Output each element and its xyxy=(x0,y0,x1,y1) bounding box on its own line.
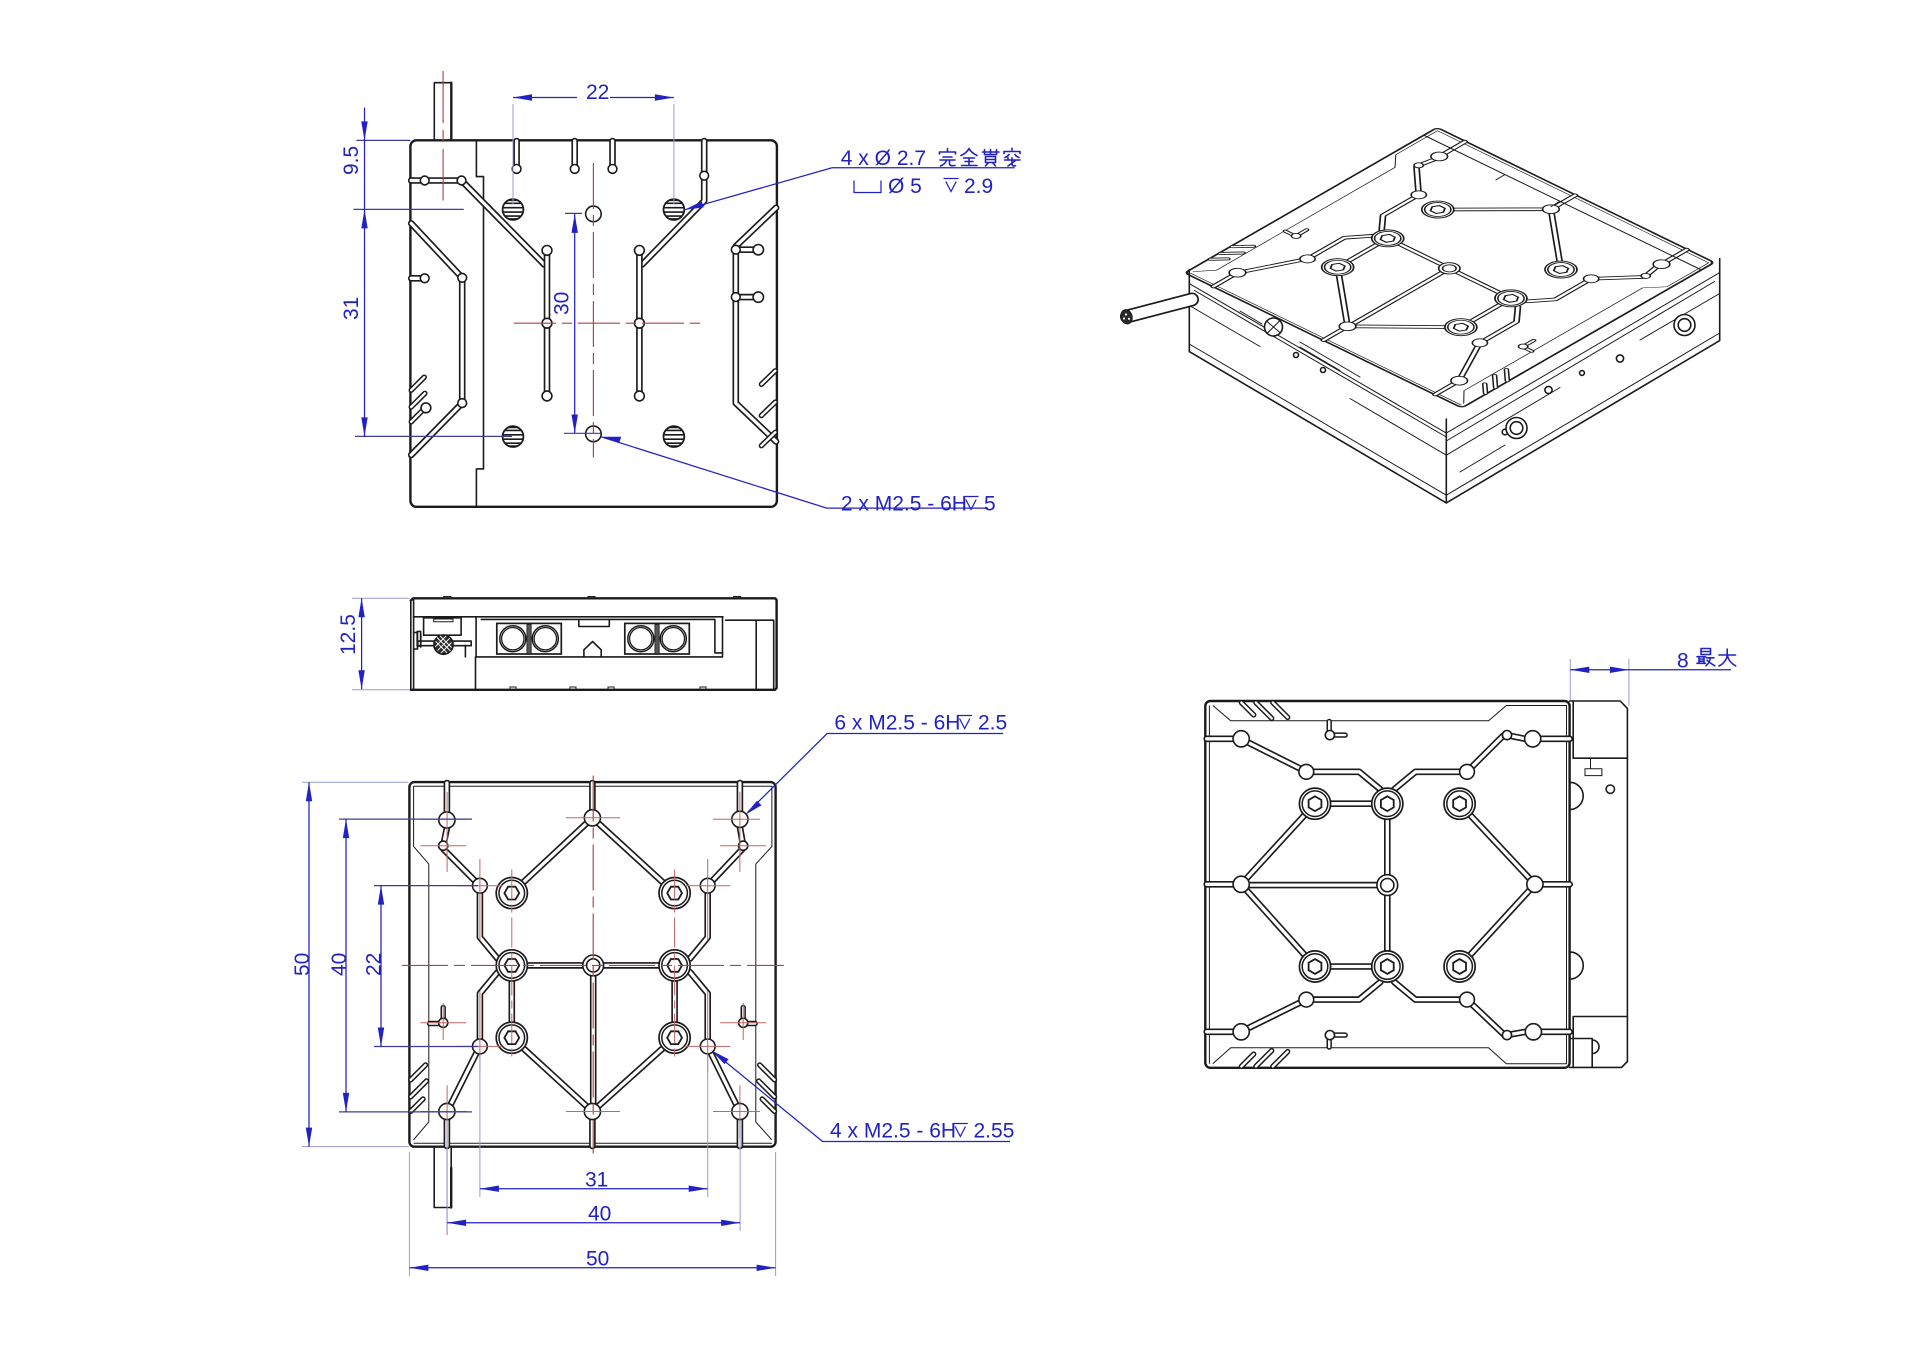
svg-text:9.5: 9.5 xyxy=(340,146,363,175)
svg-text:4 x M2.5 - 6H: 4 x M2.5 - 6H xyxy=(830,1120,956,1143)
svg-text:31: 31 xyxy=(585,1169,608,1192)
svg-text:6 x M2.5 - 6H: 6 x M2.5 - 6H xyxy=(834,712,960,735)
svg-text:40: 40 xyxy=(328,953,351,976)
svg-text:2 x M2.5 - 6H: 2 x M2.5 - 6H xyxy=(841,493,967,516)
svg-text:12.5: 12.5 xyxy=(337,614,360,655)
svg-text:8: 8 xyxy=(1677,650,1689,673)
svg-text:5: 5 xyxy=(984,493,996,516)
svg-text:22: 22 xyxy=(363,953,386,976)
svg-text:40: 40 xyxy=(588,1203,611,1226)
svg-text:50: 50 xyxy=(586,1248,609,1271)
svg-text:31: 31 xyxy=(340,297,363,320)
svg-text:4 x Ø 2.7: 4 x Ø 2.7 xyxy=(841,147,926,170)
svg-text:50: 50 xyxy=(291,953,314,976)
svg-text:Ø 5: Ø 5 xyxy=(888,175,922,198)
svg-text:2.5: 2.5 xyxy=(978,712,1007,735)
svg-text:2.9: 2.9 xyxy=(964,175,993,198)
svg-text:22: 22 xyxy=(586,81,609,104)
svg-text:30: 30 xyxy=(551,292,574,315)
svg-text:2.55: 2.55 xyxy=(974,1120,1015,1143)
